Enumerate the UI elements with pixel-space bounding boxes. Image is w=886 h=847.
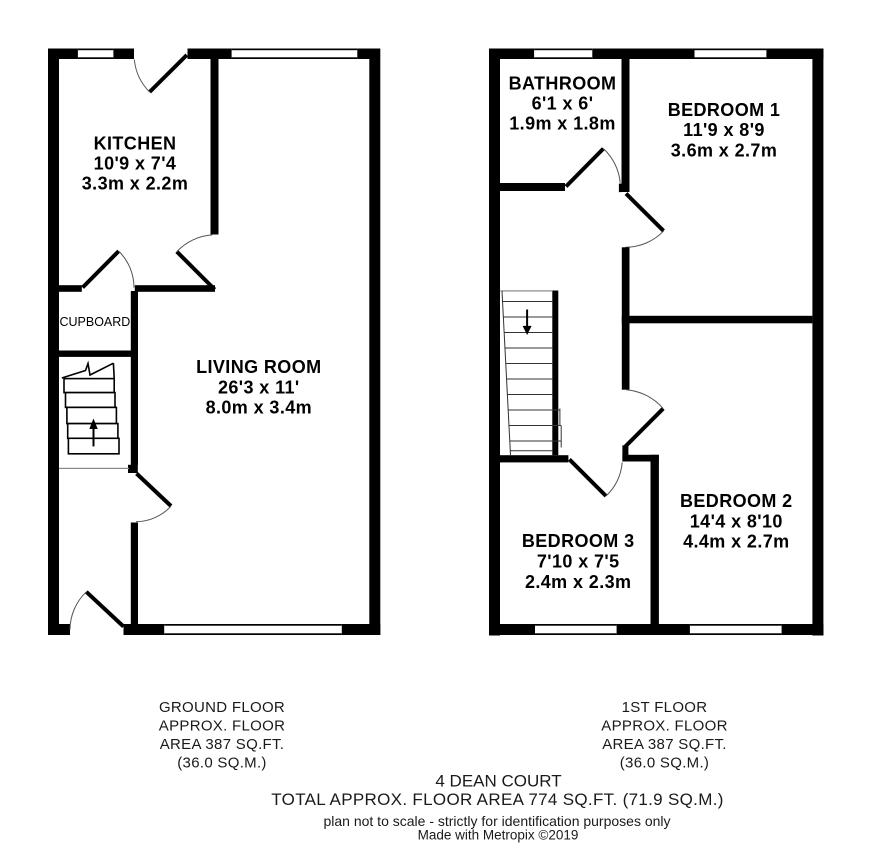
svg-text:4.4m x 2.7m: 4.4m x 2.7m — [683, 532, 789, 552]
svg-text:AREA 387 SQ.FT.: AREA 387 SQ.FT. — [602, 736, 727, 753]
svg-text:Made with Metropix ©2019: Made with Metropix ©2019 — [418, 828, 579, 843]
svg-text:3.3m x 2.2m: 3.3m x 2.2m — [82, 174, 188, 194]
svg-text:CUPBOARD: CUPBOARD — [59, 315, 130, 329]
svg-text:14'4 x 8'10: 14'4 x 8'10 — [690, 511, 783, 531]
svg-text:6'1 x 6': 6'1 x 6' — [532, 94, 594, 114]
svg-text:BEDROOM 2: BEDROOM 2 — [680, 491, 793, 511]
svg-text:7'10 x 7'5: 7'10 x 7'5 — [537, 551, 620, 571]
svg-text:1.9m x 1.8m: 1.9m x 1.8m — [509, 114, 615, 134]
svg-text:8.0m x 3.4m: 8.0m x 3.4m — [206, 398, 312, 418]
svg-text:10'9 x 7'4: 10'9 x 7'4 — [94, 154, 177, 174]
svg-text:AREA 387 SQ.FT.: AREA 387 SQ.FT. — [160, 736, 285, 753]
svg-text:APPROX. FLOOR: APPROX. FLOOR — [159, 718, 285, 735]
svg-text:GROUND FLOOR: GROUND FLOOR — [159, 699, 285, 716]
svg-text:4 DEAN COURT: 4 DEAN COURT — [435, 771, 561, 790]
svg-text:11'9 x 8'9: 11'9 x 8'9 — [683, 120, 765, 140]
svg-text:1ST FLOOR: 1ST FLOOR — [622, 699, 708, 716]
svg-text:3.6m x 2.7m: 3.6m x 2.7m — [671, 140, 777, 160]
svg-text:APPROX. FLOOR: APPROX. FLOOR — [601, 718, 727, 735]
svg-text:(36.0 SQ.M.): (36.0 SQ.M.) — [177, 754, 266, 771]
svg-text:KITCHEN: KITCHEN — [94, 134, 177, 154]
svg-text:2.4m x 2.3m: 2.4m x 2.3m — [525, 572, 631, 592]
svg-text:26'3 x 11': 26'3 x 11' — [218, 377, 300, 397]
svg-text:LIVING ROOM: LIVING ROOM — [196, 357, 321, 377]
svg-text:TOTAL APPROX. FLOOR AREA 774 S: TOTAL APPROX. FLOOR AREA 774 SQ.FT. (71.… — [271, 790, 723, 809]
svg-text:(36.0 SQ.M.): (36.0 SQ.M.) — [620, 754, 709, 771]
svg-text:BEDROOM 3: BEDROOM 3 — [522, 531, 635, 551]
svg-text:BATHROOM: BATHROOM — [509, 74, 617, 94]
svg-text:BEDROOM 1: BEDROOM 1 — [668, 100, 781, 120]
